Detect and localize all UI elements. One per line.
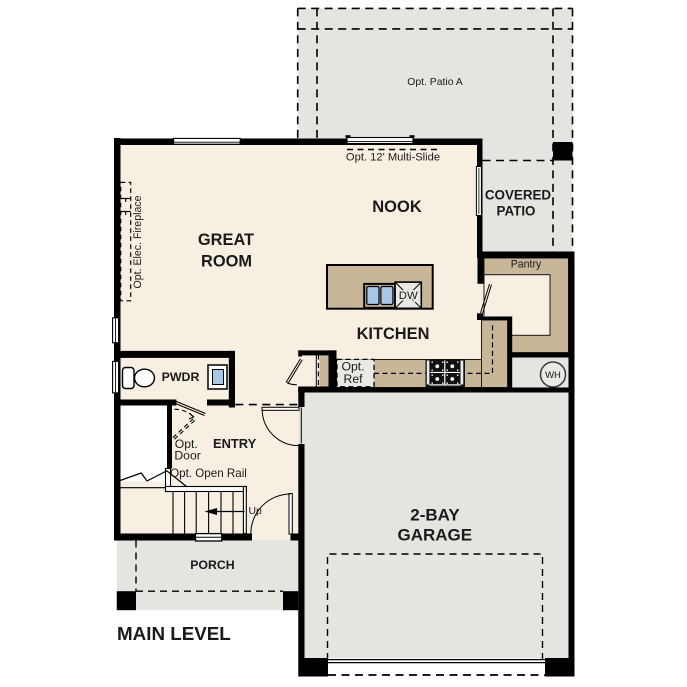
svg-text:Opt. Patio A: Opt. Patio A	[407, 77, 463, 88]
svg-text:Ref: Ref	[344, 372, 364, 386]
svg-text:Up: Up	[249, 506, 263, 517]
svg-text:PATIO: PATIO	[497, 203, 536, 218]
svg-text:MAIN LEVEL: MAIN LEVEL	[117, 623, 231, 644]
svg-text:COVERED: COVERED	[485, 188, 552, 203]
svg-text:GREAT: GREAT	[198, 231, 254, 249]
svg-text:NOOK: NOOK	[372, 198, 422, 216]
svg-text:Opt. Open Rail: Opt. Open Rail	[170, 467, 247, 480]
svg-text:ENTRY: ENTRY	[213, 436, 257, 451]
svg-text:Opt. 12' Multi-Slide: Opt. 12' Multi-Slide	[346, 151, 440, 163]
svg-text:GARAGE: GARAGE	[397, 526, 472, 545]
svg-text:Pantry: Pantry	[511, 259, 542, 271]
svg-text:Opt. Elec. Fireplace: Opt. Elec. Fireplace	[132, 195, 144, 288]
svg-text:Door: Door	[174, 449, 200, 463]
svg-text:2-BAY: 2-BAY	[410, 506, 460, 525]
svg-text:PWDR: PWDR	[162, 370, 200, 384]
svg-text:DW: DW	[399, 290, 418, 302]
svg-text:PORCH: PORCH	[190, 558, 235, 572]
svg-text:ROOM: ROOM	[201, 253, 252, 271]
svg-text:KITCHEN: KITCHEN	[357, 325, 430, 343]
svg-text:WH: WH	[545, 370, 561, 381]
